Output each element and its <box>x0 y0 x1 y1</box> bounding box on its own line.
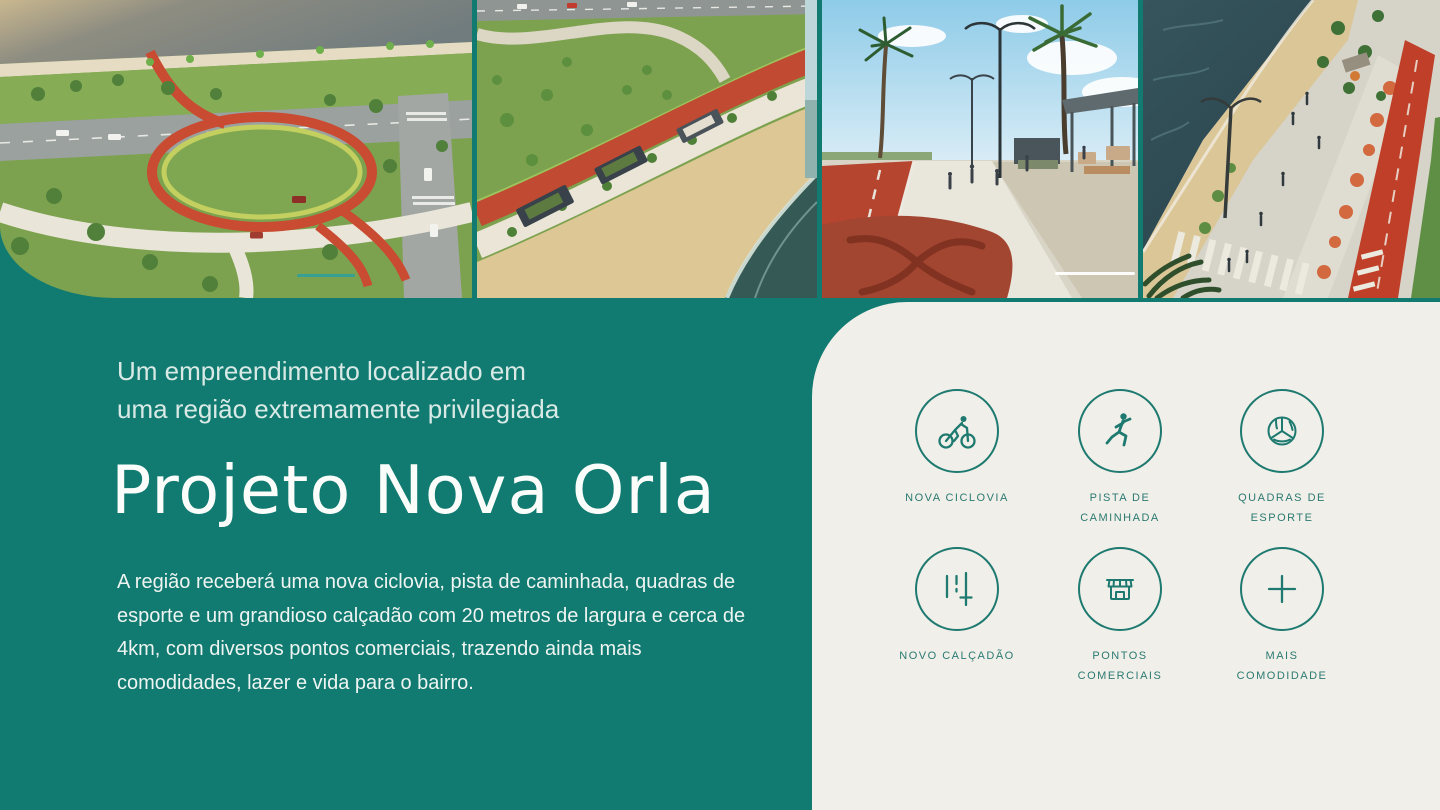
feature-label: NOVA CICLOVIA <box>872 488 1042 508</box>
promenade-kiosks-illustration <box>477 0 817 298</box>
feature-label: PONTOS COMERCIAIS <box>1035 646 1205 686</box>
page-title: Projeto Nova Orla <box>111 444 716 536</box>
feature-nova-ciclovia: NOVA CICLOVIA <box>872 389 1042 508</box>
slide-canvas: Um empreendimento localizado em uma regi… <box>0 0 1440 810</box>
bicycle-icon <box>915 389 999 473</box>
hero-image-promenade-kiosks <box>477 0 817 298</box>
feature-pontos-comerciais: PONTOS COMERCIAIS <box>1035 547 1205 686</box>
feature-mais-comodidade: MAIS COMODIDADE <box>1197 547 1367 686</box>
feature-pista-de-caminhada: PISTA DE CAMINHADA <box>1035 389 1205 528</box>
hero-image-beach-avenue <box>1143 0 1440 298</box>
hero-image-aerial-park-loop <box>0 0 472 298</box>
storefront-icon <box>1078 547 1162 631</box>
lanes-icon <box>915 547 999 631</box>
hero-image-strip <box>0 0 1440 298</box>
hero-image-street-level <box>822 0 1138 298</box>
beach-avenue-illustration <box>1143 0 1440 298</box>
intro-kicker: Um empreendimento localizado em uma regi… <box>117 352 559 428</box>
feature-label: QUADRAS DE ESPORTE <box>1197 488 1367 528</box>
volleyball-icon <box>1240 389 1324 473</box>
feature-label: MAIS COMODIDADE <box>1197 646 1367 686</box>
plus-icon <box>1240 547 1324 631</box>
feature-quadras-de-esporte: QUADRAS DE ESPORTE <box>1197 389 1367 528</box>
runner-icon <box>1078 389 1162 473</box>
features-card: NOVA CICLOVIA PISTA DE CAMINHADA QUADRAS… <box>812 302 1440 810</box>
feature-novo-calcadao: NOVO CALÇADÃO <box>872 547 1042 666</box>
intro-paragraph: A região receberá uma nova ciclovia, pis… <box>117 566 745 700</box>
feature-label: NOVO CALÇADÃO <box>872 646 1042 666</box>
aerial-park-loop-illustration <box>0 0 472 298</box>
feature-label: PISTA DE CAMINHADA <box>1035 488 1205 528</box>
street-level-illustration <box>822 0 1138 298</box>
